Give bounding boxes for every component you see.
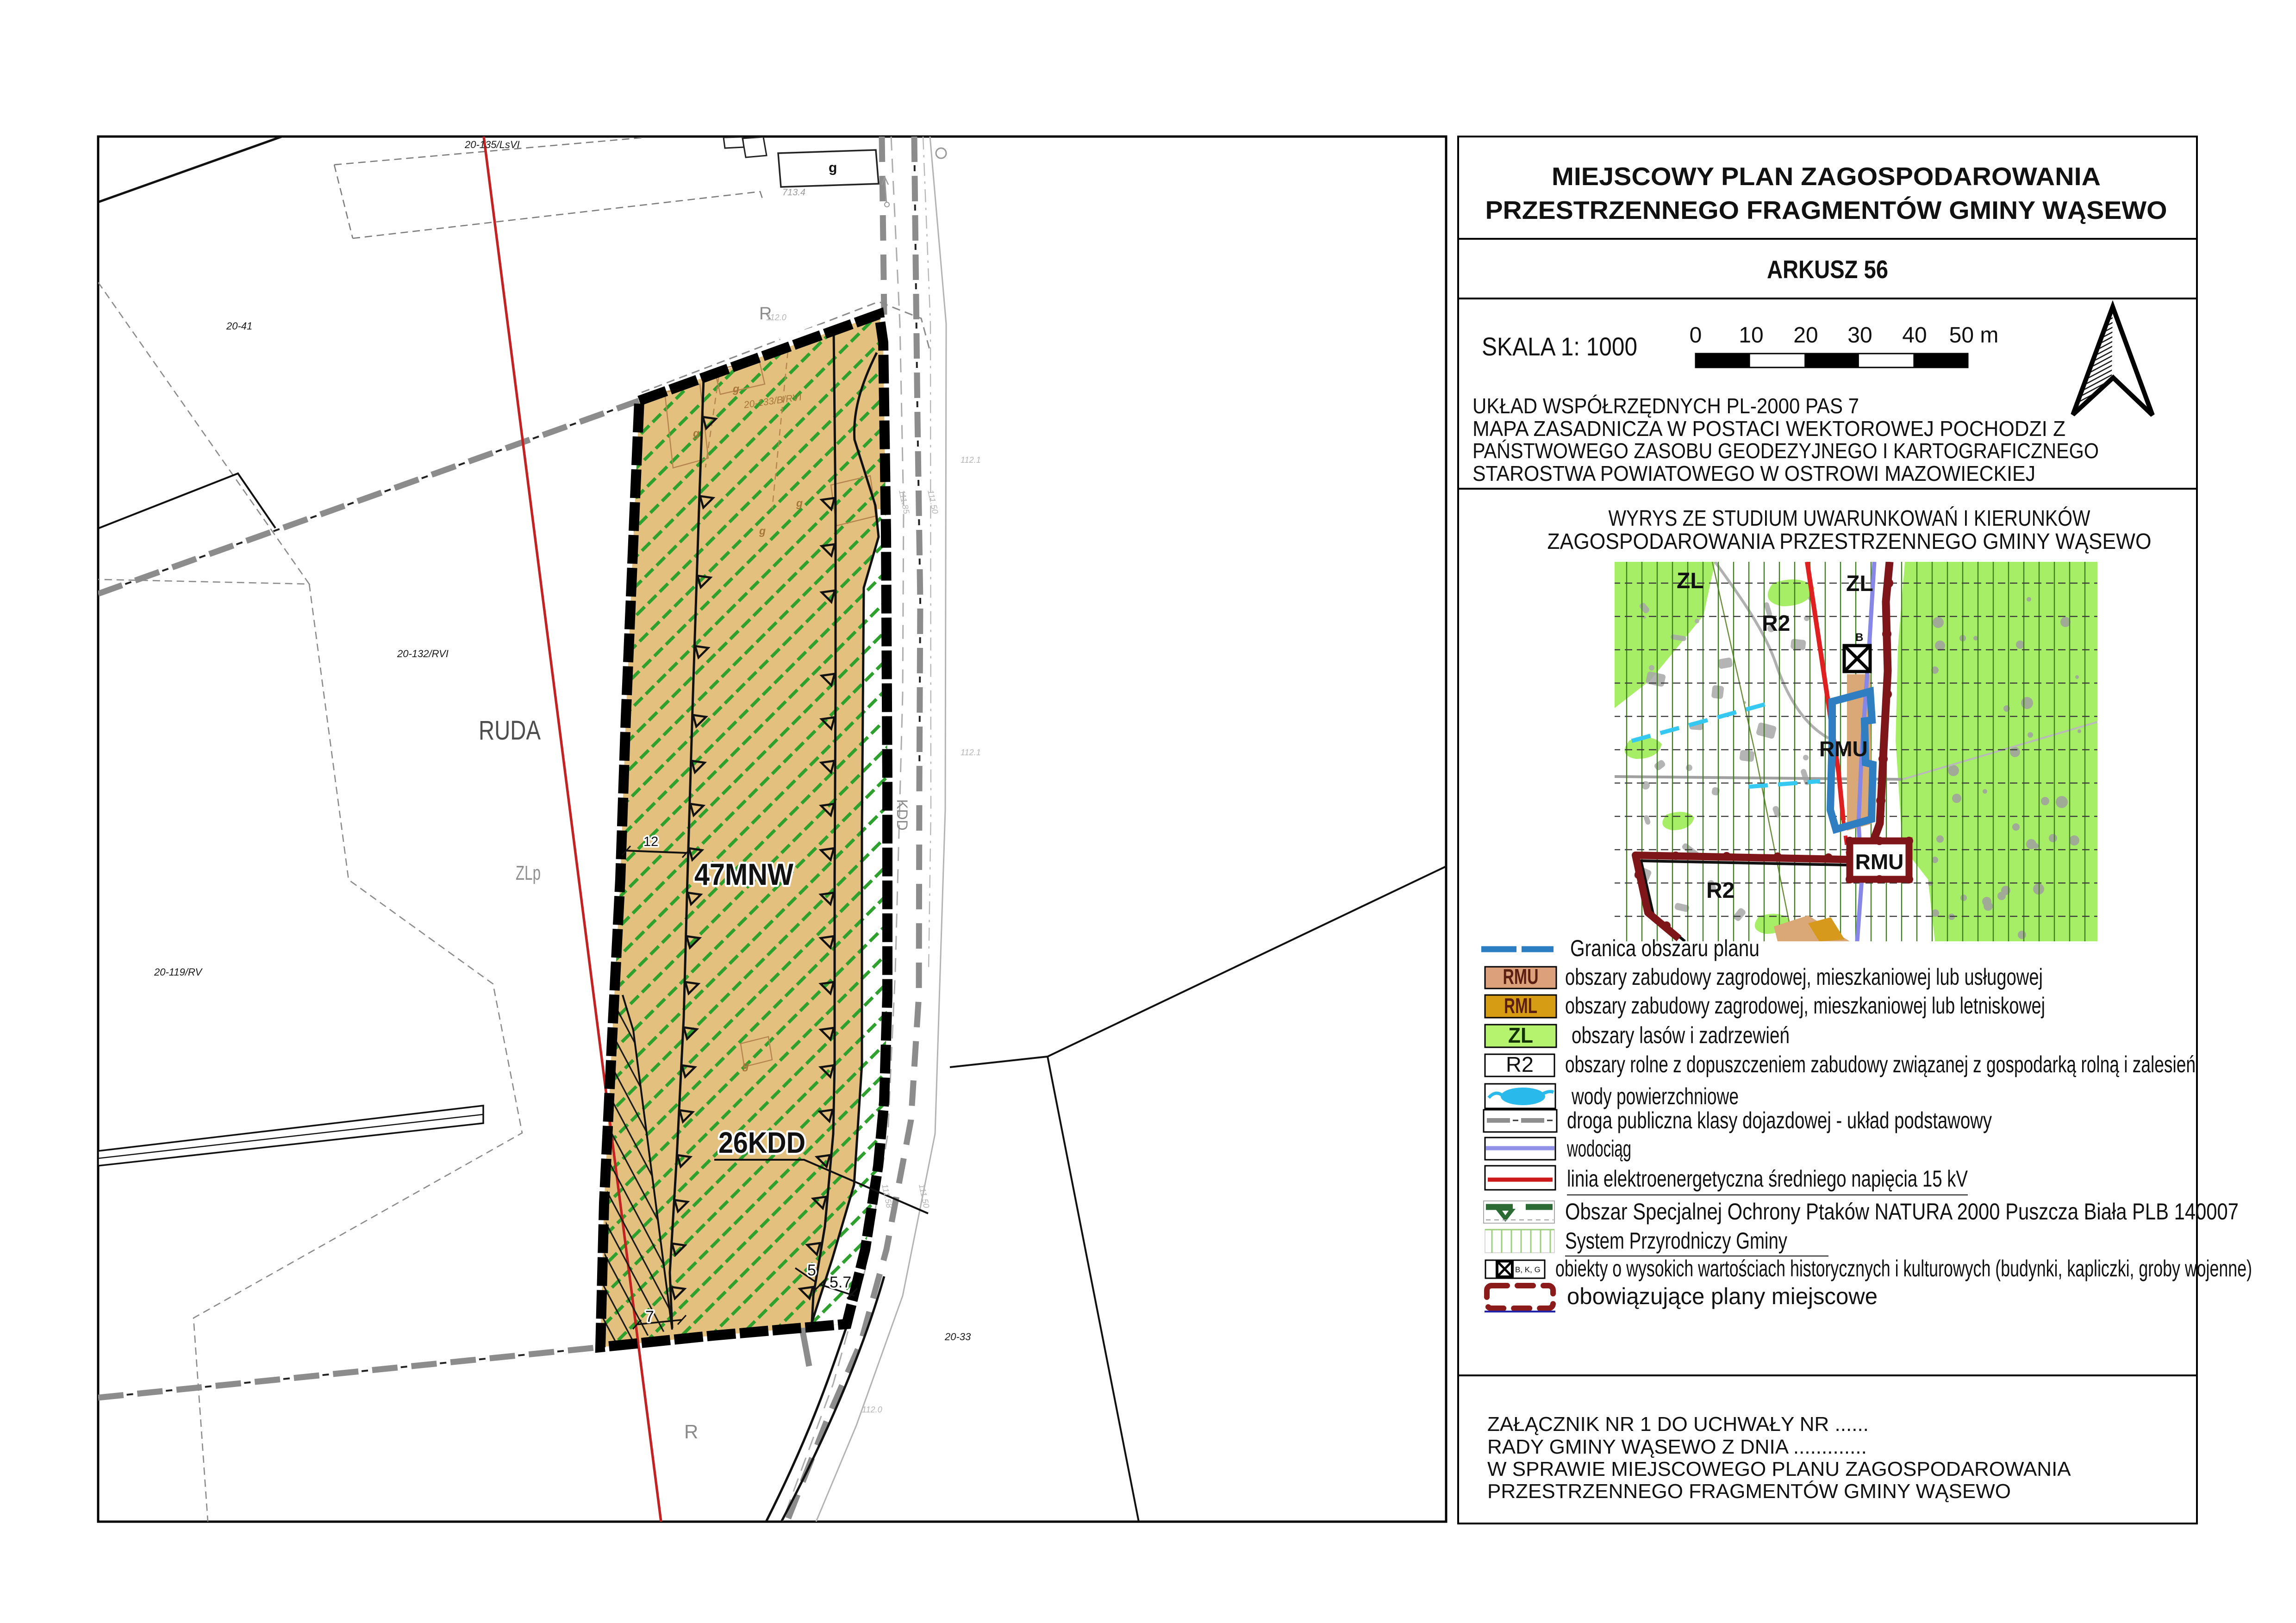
svg-text:R2: R2 [1762,611,1790,636]
svg-text:g: g [759,525,766,537]
svg-text:RADY GMINY WĄSEWO Z DNIA .....: RADY GMINY WĄSEWO Z DNIA ............. [1487,1436,1867,1458]
svg-text:20: 20 [1793,323,1818,348]
svg-text:obszary zabudowy zagrodowej, m: obszary zabudowy zagrodowej, mieszkaniow… [1565,993,2045,1019]
svg-text:ZL: ZL [1677,569,1704,593]
svg-text:26KDD: 26KDD [718,1126,805,1159]
svg-text:40: 40 [1902,323,1927,348]
svg-text:R: R [684,1421,698,1443]
svg-text:R2: R2 [1706,878,1734,903]
svg-text:SKALA 1: 1000: SKALA 1: 1000 [1482,332,1637,361]
svg-text:MIEJSCOWY PLAN ZAGOSPODAROWANI: MIEJSCOWY PLAN ZAGOSPODAROWANIA [1552,162,2101,191]
svg-text:7: 7 [645,1308,654,1325]
svg-text:713.4: 713.4 [782,187,805,198]
svg-text:STAROSTWA POWIATOWEGO W OSTROW: STAROSTWA POWIATOWEGO W OSTROWI MAZOWIEC… [1472,461,2035,485]
svg-text:obszary lasów i zadrzewień: obszary lasów i zadrzewień [1572,1022,1790,1048]
svg-text:g: g [742,1059,749,1071]
svg-text:20-135/LsVI: 20-135/LsVI [464,139,520,150]
svg-text:RMU: RMU [1855,850,1904,874]
svg-text:30: 30 [1847,323,1872,348]
svg-text:B: B [1855,631,1863,644]
svg-text:PRZESTRZENNEGO FRAGMENTÓW GMIN: PRZESTRZENNEGO FRAGMENTÓW GMINY WĄSEWO [1485,196,2167,224]
svg-text:20-41: 20-41 [226,320,252,332]
svg-text:linia elektroenergetyczna śred: linia elektroenergetyczna średniego napi… [1567,1166,1968,1192]
svg-text:wody powierzchniowe: wody powierzchniowe [1571,1083,1739,1109]
svg-text:RMU: RMU [1503,964,1539,989]
svg-text:ARKUSZ 56: ARKUSZ 56 [1767,255,1888,284]
svg-text:droga publiczna klasy dojazdow: droga publiczna klasy dojazdowej - układ… [1567,1107,1992,1133]
svg-text:RUDA: RUDA [479,715,541,746]
svg-text:112.1: 112.1 [961,455,981,465]
svg-text:RMU: RMU [1819,737,1868,761]
svg-text:112.0: 112.0 [862,1405,882,1414]
svg-text:20-33: 20-33 [944,1331,971,1343]
svg-text:wodociąg: wodociąg [1566,1136,1631,1162]
svg-text:g: g [796,497,803,509]
svg-text:g: g [829,160,837,175]
svg-text:20-132/RVI: 20-132/RVI [397,648,449,659]
svg-text:112.0: 112.0 [766,313,786,322]
svg-text:obszary rolne z dopuszczeniem: obszary rolne z dopuszczeniem zabudowy z… [1565,1051,2196,1077]
svg-text:0: 0 [1690,323,1702,348]
svg-text:ZLp: ZLp [516,862,541,884]
svg-text:50 m: 50 m [1949,323,1999,348]
svg-text:RML: RML [1504,994,1537,1018]
svg-text:obiekty o wysokich wartościach: obiekty o wysokich wartościach historycz… [1555,1256,2252,1281]
svg-text:PRZESTRZENNEGO FRAGMENTÓW GMIN: PRZESTRZENNEGO FRAGMENTÓW GMINY WĄSEWO [1487,1480,2011,1503]
svg-text:ZL: ZL [1508,1023,1533,1047]
svg-text:ZAGOSPODAROWANIA PRZESTRZENNEG: ZAGOSPODAROWANIA PRZESTRZENNEGO GMINY WĄ… [1547,529,2152,554]
svg-text:ZAŁĄCZNIK NR 1 DO UCHWAŁY NR .: ZAŁĄCZNIK NR 1 DO UCHWAŁY NR ...... [1487,1413,1869,1436]
svg-text:UKŁAD WSPÓŁRZĘDNYCH PL-2000 PA: UKŁAD WSPÓŁRZĘDNYCH PL-2000 PAS 7 [1472,394,1859,418]
svg-text:PAŃSTWOWEGO ZASOBU GEODEZYJNEG: PAŃSTWOWEGO ZASOBU GEODEZYJNEGO I KARTOG… [1472,439,2099,463]
svg-text:112.1: 112.1 [961,748,981,757]
svg-text:10: 10 [1739,323,1763,348]
svg-text:KDD: KDD [894,799,911,831]
svg-text:Granica obszaru planu: Granica obszaru planu [1570,935,1759,961]
svg-text:System Przyrodniczy Gminy: System Przyrodniczy Gminy [1565,1228,1787,1254]
svg-text:g: g [693,427,699,439]
svg-text:47MNW: 47MNW [694,857,794,891]
svg-text:obowiązujące plany miejscowe: obowiązujące plany miejscowe [1567,1283,1878,1309]
svg-text:B, K, G: B, K, G [1515,1265,1541,1274]
svg-text:Obszar Specjalnej Ochrony Ptak: Obszar Specjalnej Ochrony Ptaków NATURA … [1565,1199,2239,1225]
svg-text:5.7: 5.7 [830,1274,851,1291]
svg-text:W SPRAWIE MIEJSCOWEGO PLANU ZA: W SPRAWIE MIEJSCOWEGO PLANU ZAGOSPODAROW… [1487,1458,2071,1480]
svg-text:g: g [732,383,739,395]
svg-text:WYRYS ZE STUDIUM UWARUNKOWAŃ I: WYRYS ZE STUDIUM UWARUNKOWAŃ I KIERUNKÓW [1609,506,2091,531]
svg-text:5: 5 [807,1262,816,1279]
svg-text:20-119/RV: 20-119/RV [154,966,203,978]
svg-text:ZL: ZL [1846,572,1873,596]
svg-text:12: 12 [643,834,658,849]
svg-text:MAPA ZASADNICZA W POSTACI WEKT: MAPA ZASADNICZA W POSTACI WEKTOROWEJ POC… [1472,417,2065,441]
svg-text:R2: R2 [1506,1052,1534,1076]
svg-text:obszary zabudowy zagrodowej, m: obszary zabudowy zagrodowej, mieszkaniow… [1565,964,2043,990]
